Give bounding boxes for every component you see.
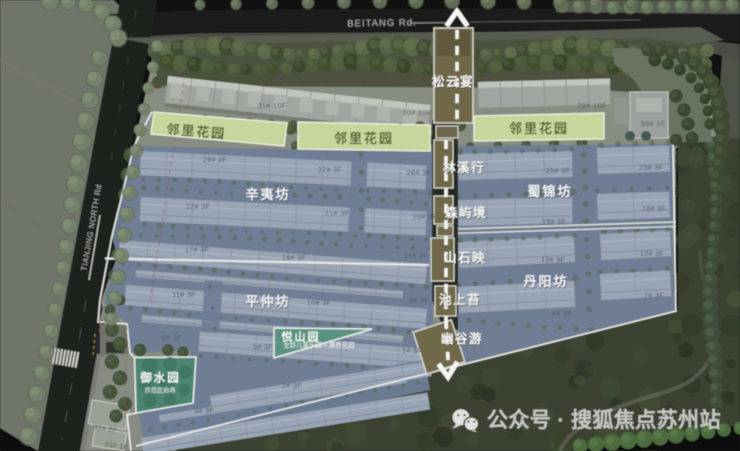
svg-text:丹阳坊: 丹阳坊	[523, 274, 568, 289]
svg-text:19# 3F: 19# 3F	[542, 217, 566, 226]
svg-text:全龄儿童乐园 + 康养花园: 全龄儿童乐园 + 康养花园	[283, 340, 354, 349]
svg-text:BEITANG Rd.: BEITANG Rd.	[347, 17, 417, 29]
svg-text:11# 3F: 11# 3F	[172, 290, 196, 299]
svg-text:8# 3F: 8# 3F	[552, 309, 572, 318]
svg-text:6# 3F: 6# 3F	[162, 333, 182, 342]
svg-text:25# 3F: 25# 3F	[546, 166, 570, 175]
svg-text:3# 3F: 3# 3F	[194, 406, 214, 415]
svg-text:松云宴: 松云宴	[432, 74, 474, 89]
svg-text:27# 3F: 27# 3F	[318, 165, 342, 174]
svg-text:蜀锦坊: 蜀锦坊	[527, 184, 572, 199]
svg-text:20# 3F: 20# 3F	[413, 212, 437, 221]
svg-text:10# 3F: 10# 3F	[307, 298, 331, 307]
svg-text:29# 10F: 29# 10F	[577, 101, 607, 110]
svg-text:山石映: 山石映	[444, 250, 486, 265]
svg-text:示范区后场: 示范区后场	[145, 387, 176, 395]
svg-text:35# 1F: 35# 1F	[640, 119, 665, 128]
svg-text:公众号 · 搜狐焦点苏州站: 公众号 · 搜狐焦点苏州站	[487, 408, 721, 432]
svg-text:辛夷坊: 辛夷坊	[245, 187, 290, 202]
svg-text:邻里花园: 邻里花园	[508, 121, 569, 136]
svg-text:幽谷游: 幽谷游	[441, 331, 483, 346]
svg-text:17# 3F: 17# 3F	[185, 245, 209, 254]
svg-text:1# 3F: 1# 3F	[402, 346, 422, 355]
svg-text:26# 3F: 26# 3F	[407, 168, 431, 177]
svg-text:7# 3F: 7# 3F	[644, 291, 664, 300]
svg-text:21# 3F: 21# 3F	[325, 209, 349, 218]
svg-text:御水园: 御水园	[139, 371, 181, 385]
svg-text:池上苔: 池上苔	[439, 292, 481, 307]
svg-text:15# 3F: 15# 3F	[404, 251, 428, 260]
svg-text:邻里花园: 邻里花园	[333, 131, 394, 146]
svg-text:5# 3F: 5# 3F	[253, 342, 273, 351]
svg-text:28# 3F: 28# 3F	[203, 155, 227, 164]
svg-text:12# 3F: 12# 3F	[640, 249, 664, 258]
svg-text:林溪行: 林溪行	[443, 160, 485, 175]
svg-text:9# 3F: 9# 3F	[409, 296, 429, 305]
svg-text:14# 3F: 14# 3F	[282, 253, 306, 262]
svg-text:22# 3F: 22# 3F	[186, 202, 210, 211]
svg-text:平仲坊: 平仲坊	[245, 294, 290, 309]
svg-text:2# 3F: 2# 3F	[282, 381, 302, 390]
svg-text:31# 10F: 31# 10F	[257, 101, 287, 110]
svg-text:18# 3F: 18# 3F	[642, 204, 666, 213]
svg-text:13# 3F: 13# 3F	[541, 255, 565, 264]
svg-text:30# 10F: 30# 10F	[402, 108, 432, 117]
svg-text:23# 3F: 23# 3F	[639, 163, 663, 172]
svg-text:森屿境: 森屿境	[445, 205, 487, 220]
